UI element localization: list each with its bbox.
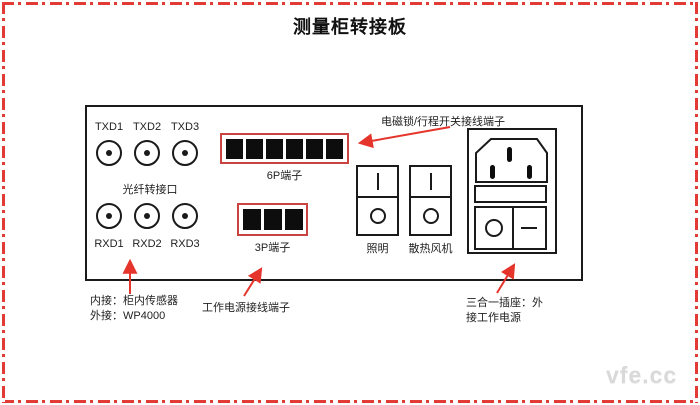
txd1-fiber-port-icon [96,140,122,166]
frame-border-left [2,2,5,403]
txd2-label: TXD2 [127,121,167,133]
terminal-6p-label: 6P端子 [220,167,349,183]
page-title: 测量柜转接板 [0,13,700,39]
fiber-note-line1: 内接：柜内传感器 [90,294,178,309]
switch-off-circle [423,208,439,224]
diagram-page: 测量柜转接板 TXD1 TXD2 TXD3 光纤转接口 RXD1 RXD2 RX… [0,0,700,405]
switch-on-bar [377,173,379,190]
port-center-dot [106,150,112,156]
terminal-pin [264,209,282,230]
switch-rocker-on [358,167,397,198]
terminal-pin [326,139,343,159]
switch-rocker-off [411,198,450,234]
frame-border-top [2,2,698,5]
terminal-pin [243,209,261,230]
terminal-pin [286,139,303,159]
port-center-dot [182,150,188,156]
terminal-6p-block [220,133,349,164]
rxd2-label: RXD2 [127,238,167,250]
txd2-fiber-port-icon [134,140,160,166]
terminal-pin [226,139,243,159]
lock-terminal-annotation: 电磁锁/行程开关接线端子 [381,113,505,129]
power-socket-icon [467,128,557,254]
rxd1-fiber-port-icon [96,203,122,229]
rxd1-label: RXD1 [89,238,129,250]
port-center-dot [144,150,150,156]
rxd2-fiber-port-icon [134,203,160,229]
txd1-label: TXD1 [89,121,129,133]
port-center-dot [182,213,188,219]
rxd3-fiber-port-icon [172,203,198,229]
txd3-fiber-port-icon [172,140,198,166]
terminal-3p-label: 3P端子 [237,239,308,255]
power-terminal-annotation: 工作电源接线端子 [202,301,290,316]
watermark: vfe.cc [606,362,677,389]
fiber-section-label: 光纤转接口 [105,181,195,197]
light-switch-icon [356,165,399,236]
rxd3-label: RXD3 [165,238,205,250]
fiber-note: 内接：柜内传感器 外接：WP4000 [90,294,178,324]
switch-rocker-off [358,198,397,234]
terminal-pin [246,139,263,159]
switch-on-bar [430,173,432,190]
power-socket-graphic [469,130,555,252]
txd3-label: TXD3 [165,121,205,133]
terminal-pin [266,139,283,159]
port-center-dot [144,213,150,219]
terminal-3p-block [237,203,308,236]
socket-note: 三合一插座：外 接工作电源 [466,296,543,326]
fan-switch-icon [409,165,452,236]
socket-note-line1: 三合一插座：外 [466,296,543,311]
terminal-pin [306,139,323,159]
frame-border-right [695,2,698,403]
switch-off-circle [370,208,386,224]
switch-rocker-on [411,167,450,198]
light-switch-label: 照明 [356,240,399,256]
socket-note-line2: 接工作电源 [466,311,543,326]
frame-border-bottom [2,400,698,403]
port-center-dot [106,213,112,219]
terminal-pin [285,209,303,230]
fiber-note-line2: 外接：WP4000 [90,309,178,324]
fan-switch-label: 散热风机 [399,240,462,256]
